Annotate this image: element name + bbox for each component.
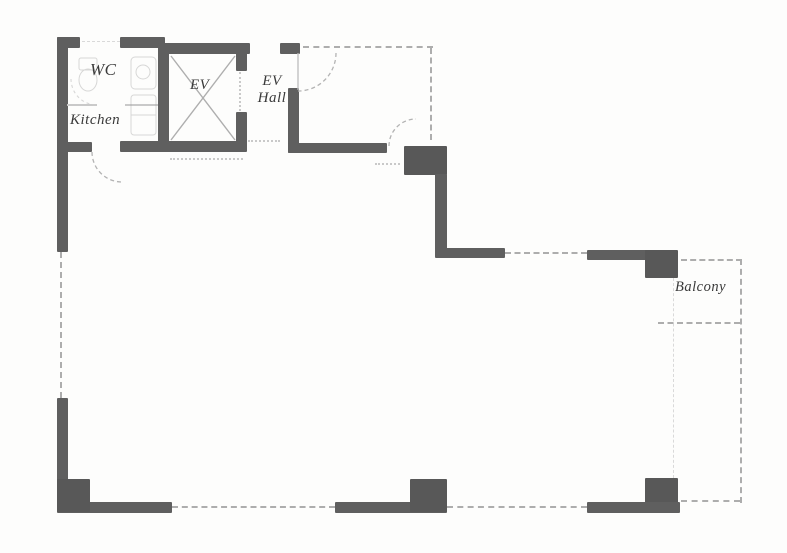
wall-ev-right-bottom <box>236 112 247 152</box>
window-left <box>60 252 62 398</box>
pillar-bottom-mid <box>410 479 447 512</box>
elevator-label: EV <box>190 77 209 94</box>
window-wc-top <box>82 41 120 42</box>
elevator-x-symbol <box>171 56 235 140</box>
wall-top-evhall-stub <box>280 43 300 54</box>
wall-kitchen-ev-bottom <box>120 141 243 152</box>
wall-divider-kitchen-ev <box>158 43 169 150</box>
wall-below-entry-pillar <box>435 174 447 252</box>
kitchen-door-arc <box>92 152 122 182</box>
wall-room-top-a <box>435 248 505 258</box>
ev-hall-label-line1: EV <box>262 73 281 89</box>
pillar-bottom-left <box>57 479 90 512</box>
ev-hall-label-line2: Hall <box>258 90 287 106</box>
pillar-balcony-top <box>645 250 678 278</box>
kitchen-counter-fixture <box>131 95 156 135</box>
wc-door-arc <box>71 79 97 105</box>
ev-hall-label: EV Hall <box>248 73 296 107</box>
kitchen-label: Kitchen <box>70 112 120 129</box>
floor-plan: WC Kitchen EV EV Hall Balcony <box>0 0 787 553</box>
window-bottom-b <box>447 506 587 508</box>
balcony-boundary-bottom <box>681 500 740 502</box>
partition-wc-kitchen-b <box>125 104 158 106</box>
balcony-divider <box>658 322 740 324</box>
wall-ev-right-top <box>236 43 247 71</box>
balcony-boundary-top <box>681 259 742 261</box>
wall-bottom-c <box>587 502 680 513</box>
entry-boundary-right <box>430 48 432 140</box>
entry-boundary-top <box>303 46 433 48</box>
window-room-right <box>673 278 674 478</box>
window-room-top <box>505 252 587 254</box>
inner-door-arc <box>389 119 416 146</box>
ev-door-line <box>239 72 241 111</box>
evhall-threshold-dashes <box>248 140 280 142</box>
entry-door-threshold <box>375 163 400 165</box>
entry-door-arc <box>298 53 336 91</box>
pillar-entry <box>404 146 447 175</box>
sink-fixture <box>131 57 156 89</box>
wc-label: WC <box>90 60 117 80</box>
wall-room-top-b <box>587 250 648 260</box>
balcony-boundary-right <box>740 259 742 503</box>
balcony-label: Balcony <box>675 279 726 296</box>
wall-kitchen-bottom-a <box>57 142 92 152</box>
wall-right-of-evhall <box>288 143 387 153</box>
window-bottom-a <box>172 506 335 508</box>
ev-threshold-dashes <box>170 158 243 160</box>
partition-wc-kitchen-a <box>67 104 97 106</box>
